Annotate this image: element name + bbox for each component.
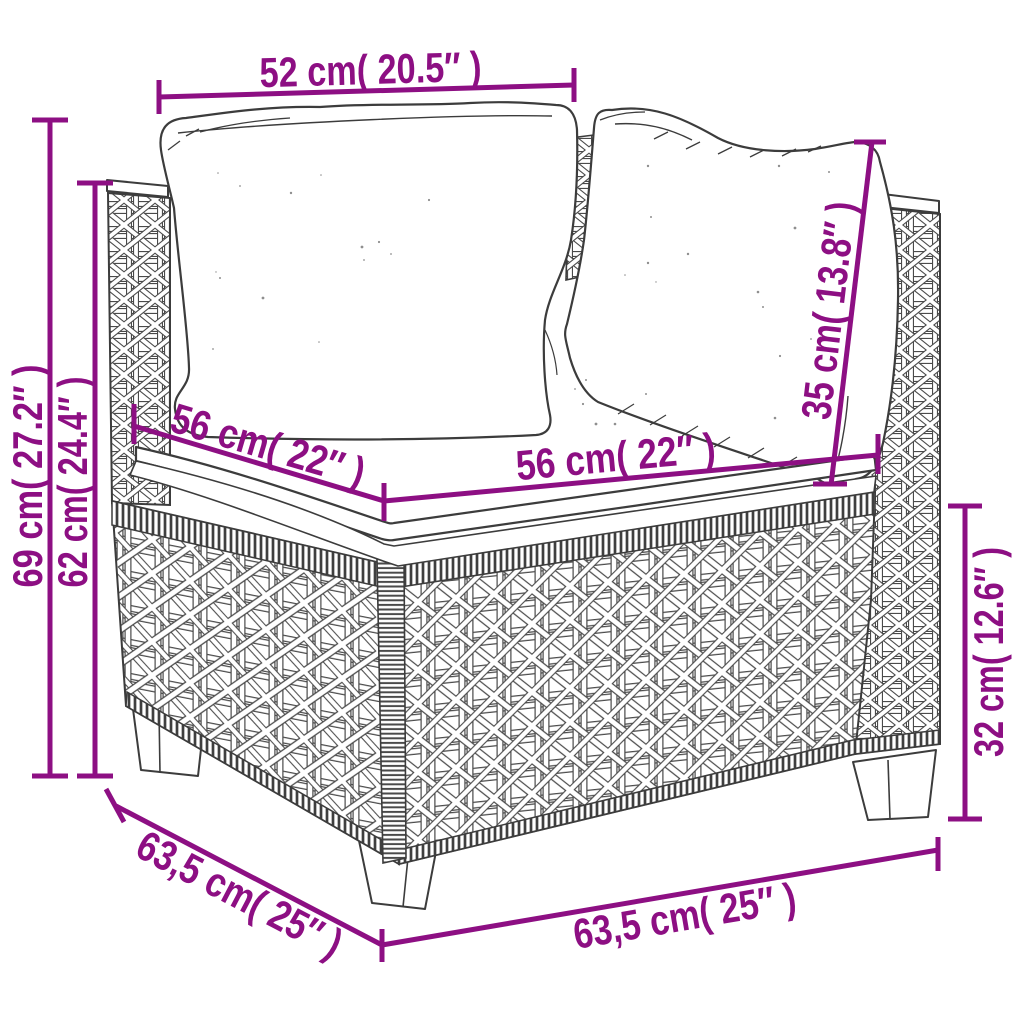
svg-text:69 cm( 27.2″ ): 69 cm( 27.2″ ) (4, 365, 51, 588)
svg-text:62 cm( 24.4″ ): 62 cm( 24.4″ ) (49, 377, 96, 588)
svg-text:52 cm( 20.5″ ): 52 cm( 20.5″ ) (259, 43, 482, 97)
svg-text:32 cm( 12.6″ ): 32 cm( 12.6″ ) (965, 547, 1012, 757)
